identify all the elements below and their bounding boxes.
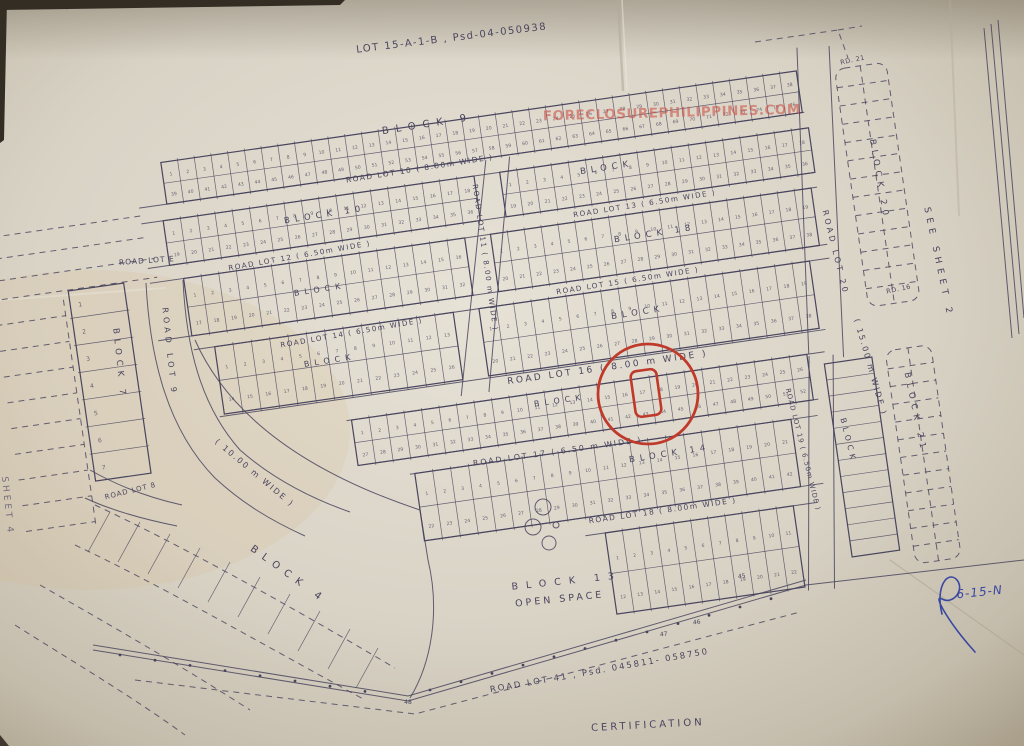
lot-number: 40 [590, 419, 597, 426]
lot-number: 21 [774, 572, 781, 579]
lot-number: 52 [388, 160, 395, 167]
lot-number: 10 [585, 467, 592, 474]
lot-number: 25 [336, 300, 343, 307]
lot-number: 18 [785, 207, 792, 214]
photo-of-subdivision-plan: { "photo": { "description": "photographe… [0, 0, 1024, 746]
lot-number: 12 [679, 298, 686, 305]
lot-number: 30 [364, 224, 371, 231]
lot-number: 64 [589, 131, 596, 138]
lot-number: 35 [661, 489, 668, 496]
lot-number: 26 [603, 261, 610, 268]
lot-number: 13 [637, 591, 644, 598]
lot-number: 27 [371, 295, 378, 302]
lot-number: 59 [505, 143, 512, 150]
lot-number: 13 [713, 152, 720, 159]
lot-number: 32 [450, 439, 457, 446]
lot-number: 25 [613, 188, 620, 195]
lot-number: 44 [254, 179, 261, 186]
lot-number: 15 [438, 257, 445, 264]
lot-number: 17 [447, 190, 454, 197]
lot-number: 49 [338, 167, 345, 174]
lot-number: 12 [696, 155, 703, 162]
lot-number: 23 [536, 118, 543, 125]
lot-number: 26 [597, 343, 604, 350]
lot-number: 37 [788, 316, 795, 323]
lot-number: 31 [442, 284, 449, 291]
lot-number: 10 [350, 270, 357, 277]
lot-number: 20 [527, 201, 534, 208]
lot-number: 17 [283, 388, 290, 395]
lot-number: 14 [654, 589, 661, 596]
lot-number: 23 [446, 520, 453, 527]
lot-number: 25 [779, 369, 786, 376]
lot-number: 32 [686, 96, 693, 103]
lot-number: 22 [519, 120, 526, 127]
lot-number: 63 [572, 133, 579, 140]
lot-number: 40 [187, 189, 194, 196]
lot-number: 22 [727, 377, 734, 384]
lot-number: 19 [510, 203, 517, 210]
lot-number: 18 [213, 317, 220, 324]
lot-number: 30 [666, 333, 673, 340]
lot-number: 51 [371, 162, 378, 169]
lot-number: 25 [482, 515, 489, 522]
lot-number: 19 [469, 128, 476, 135]
lot-number: 49 [747, 396, 754, 403]
lot-number: 11 [603, 465, 610, 472]
lot-number: 16 [430, 193, 437, 200]
lot-number: 26 [449, 364, 456, 371]
lot-number: 24 [260, 239, 267, 246]
lot-number: 12 [425, 335, 432, 342]
lot-number: 28 [329, 229, 336, 236]
lot-number: 23 [301, 305, 308, 312]
lot-number: 22 [562, 196, 569, 203]
lot-number: 13 [378, 200, 385, 207]
lot-number: 20 [502, 276, 509, 283]
lot-number: 47 [712, 401, 719, 408]
lot-number: 33 [718, 326, 725, 333]
lot-number: 23 [553, 268, 560, 275]
lot-number: 33 [415, 217, 422, 224]
lot-number: 17 [710, 449, 717, 456]
lot-number: 34 [720, 92, 727, 99]
lot-number: 35 [502, 431, 509, 438]
lot-number: 15 [671, 586, 678, 593]
lot-number: 41 [769, 474, 776, 481]
lot-number: 30 [699, 176, 706, 183]
lot-number: 15 [731, 291, 738, 298]
lot-number: 27 [614, 341, 621, 348]
lot-number: 19 [320, 383, 327, 390]
lot-number: 35 [755, 239, 762, 246]
lot-number: 62 [555, 136, 562, 143]
lot-number: 50 [355, 165, 362, 172]
lot-number: 12 [620, 594, 627, 601]
lot-number: 14 [385, 140, 392, 147]
lot-number: 10 [318, 149, 325, 156]
lot-number: 15 [402, 137, 409, 144]
lot-number: 16 [751, 212, 758, 219]
lot-number: 32 [398, 219, 405, 226]
lot-number: 35 [736, 89, 743, 96]
lot-number: 30 [424, 287, 431, 294]
lot-number: 20 [485, 125, 492, 132]
lot-number: 14 [730, 150, 737, 157]
lot-number: 28 [664, 181, 671, 188]
lot-number: 21 [709, 379, 716, 386]
lot-number: 19 [174, 252, 181, 259]
lot-number: 34 [767, 166, 774, 173]
lot-number: 22 [791, 569, 798, 576]
lot-number: 12 [352, 145, 359, 152]
lot-number: 24 [762, 372, 769, 379]
lot-number: 21 [510, 356, 517, 363]
lot-number: 14 [420, 259, 427, 266]
lot-number: 48 [321, 169, 328, 176]
lot-number: 30 [415, 444, 422, 451]
lot-number: 46 [288, 174, 295, 181]
lot-number: 23 [393, 372, 400, 379]
lot-number: 21 [544, 198, 551, 205]
lot-number: 31 [432, 442, 439, 449]
lot-number: 15 [604, 394, 611, 401]
lot-number: 21 [502, 123, 509, 130]
lot-number: 16 [455, 254, 462, 261]
lot-number: 17 [768, 209, 775, 216]
lot-number: 16 [688, 584, 695, 591]
lot-number: 38 [555, 424, 562, 431]
lot-number: 18 [722, 579, 729, 586]
lot-number: 19 [674, 384, 681, 391]
lot-number: 42 [221, 184, 228, 191]
lot-number: 22 [527, 353, 534, 360]
lot-number: 14 [587, 397, 594, 404]
lot-number: 30 [671, 251, 678, 258]
lot-number: 52 [800, 389, 807, 396]
lot-number: 23 [744, 374, 751, 381]
lot-number: 42 [786, 471, 793, 478]
lot-number: 11 [407, 337, 414, 344]
lot-number: 11 [367, 267, 374, 274]
lot-number: 34 [736, 323, 743, 330]
lot-number: 68 [656, 121, 663, 128]
lot-number: 29 [346, 227, 353, 234]
lot-number: 34 [738, 242, 745, 249]
lot-number: 29 [682, 178, 689, 185]
lot-number: 10 [661, 160, 668, 167]
lot-number: 36 [520, 429, 527, 436]
lot-number: 17 [435, 133, 442, 140]
lot-number: 34 [485, 434, 492, 441]
lot-number: 67 [639, 124, 646, 131]
lot-number: 25 [587, 264, 594, 271]
lot-number: 16 [748, 288, 755, 295]
lot-number: 45 [677, 406, 684, 413]
lot-number: 11 [335, 147, 342, 154]
lot-number: 19 [231, 315, 238, 322]
lot-number: 32 [705, 247, 712, 254]
lot-number: 13 [368, 142, 375, 149]
lot-number: 23 [544, 351, 551, 358]
lot-number: 33 [625, 495, 632, 502]
lot-number: 26 [797, 367, 804, 374]
lot-number: 32 [459, 282, 466, 289]
lot-number: 33 [467, 437, 474, 444]
lot-number: 14 [395, 198, 402, 205]
lot-number: 14 [718, 217, 725, 224]
subdivision-plan: 1392403414425436447458469471048114912501… [0, 0, 1024, 746]
lot-number: 21 [208, 247, 215, 254]
lot-number: 40 [751, 477, 758, 484]
lot-number: 38 [715, 482, 722, 489]
lot-number: 53 [405, 157, 412, 164]
lot-number: 31 [381, 222, 388, 229]
lot-number: 24 [464, 518, 471, 525]
lot-number: 29 [554, 505, 561, 512]
lot-number: 58 [488, 145, 495, 152]
lot-number: 32 [607, 497, 614, 504]
lot-number: 18 [728, 447, 735, 454]
lot-number: 42 [625, 414, 632, 421]
lot-number: 28 [389, 292, 396, 299]
lot-number: 17 [705, 582, 712, 589]
lot-number: 36 [679, 487, 686, 494]
lot-number: 37 [770, 84, 777, 91]
lot-number: 13 [696, 296, 703, 303]
lot-number: 14 [714, 293, 721, 300]
lot-number: 61 [539, 138, 546, 145]
lot-number: 19 [746, 444, 753, 451]
lot-number: 50 [765, 394, 772, 401]
lot-number: 26 [354, 297, 361, 304]
label-pt-48: 48 [404, 699, 412, 706]
lot-number: 29 [397, 447, 404, 454]
lot-number: 33 [750, 169, 757, 176]
lot-number: 21 [357, 378, 364, 385]
lot-number: 43 [238, 181, 245, 188]
lot-number: 38 [806, 232, 813, 239]
label-pt-45: 45 [738, 572, 747, 580]
lot-number: 11 [679, 157, 686, 164]
lot-number: 15 [735, 214, 742, 221]
lot-number: 35 [450, 212, 457, 219]
lot-number: 36 [770, 318, 777, 325]
lot-number: 36 [772, 237, 779, 244]
lot-number: 17 [639, 389, 646, 396]
label-pt-47: 47 [660, 630, 669, 638]
lot-number: 27 [518, 510, 525, 517]
lot-number: 15 [247, 394, 254, 401]
lot-number: 24 [570, 266, 577, 273]
lot-number: 28 [380, 449, 387, 456]
lot-number: 20 [191, 249, 198, 256]
lot-number: 45 [271, 177, 278, 184]
lot-number: 13 [403, 262, 410, 269]
lot-number: 31 [716, 174, 723, 181]
lot-number: 38 [805, 313, 812, 320]
lot-number: 17 [196, 320, 203, 327]
lot-number: 22 [428, 523, 435, 530]
lot-number: 13 [701, 219, 708, 226]
lot-number: 34 [643, 492, 650, 499]
lot-number: 16 [622, 392, 629, 399]
lot-number: 32 [701, 328, 708, 335]
lot-number: 24 [562, 348, 569, 355]
lot-number: 30 [572, 502, 579, 509]
lot-number: 18 [783, 283, 790, 290]
lot-number: 20 [338, 380, 345, 387]
lot-number: 56 [455, 150, 462, 157]
lot-number: 48 [730, 399, 737, 406]
lot-number: 25 [430, 367, 437, 374]
lot-number: 11 [785, 530, 792, 537]
lot-number: 25 [579, 346, 586, 353]
lot-number: 39 [171, 191, 178, 198]
lot-number: 22 [375, 375, 382, 382]
lot-number: 66 [622, 126, 629, 133]
lot-number: 27 [362, 452, 369, 459]
lot-number: 35 [753, 321, 760, 328]
lot-number: 24 [412, 370, 419, 377]
lot-number: 15 [747, 147, 754, 154]
lot-number: 29 [649, 336, 656, 343]
lot-number: 16 [764, 145, 771, 152]
lot-number: 29 [407, 290, 414, 297]
lot-number: 47 [304, 172, 311, 179]
lot-number: 18 [799, 140, 806, 147]
lot-number: 27 [620, 259, 627, 266]
lot-number: 34 [433, 214, 440, 221]
lot-number: 17 [781, 142, 788, 149]
lot-number: 28 [536, 508, 543, 515]
lot-number: 10 [517, 407, 524, 414]
lot-number: 21 [519, 273, 526, 280]
lot-number: 16 [419, 135, 426, 142]
lot-number: 18 [464, 188, 471, 195]
lot-number: 12 [385, 264, 392, 271]
lot-number: 15 [412, 195, 419, 202]
label-pt-46: 46 [693, 618, 702, 626]
lot-number: 12 [621, 462, 628, 469]
lot-number: 17 [766, 286, 773, 293]
lot-number: 31 [589, 500, 596, 507]
lot-number: 55 [438, 152, 445, 159]
lot-number: 16 [265, 391, 272, 398]
lot-number: 10 [768, 533, 775, 540]
lot-number: 33 [703, 94, 710, 101]
lot-number: 65 [605, 128, 612, 135]
lot-number: 18 [302, 386, 309, 393]
lot-number: 36 [753, 87, 760, 94]
lot-number: 21 [266, 310, 273, 317]
lot-number: 24 [596, 191, 603, 198]
lot-number: 26 [630, 186, 637, 193]
lot-number: 20 [492, 358, 499, 365]
lot-number: 36 [467, 209, 474, 216]
lot-number: 36 [802, 161, 809, 168]
lot-number: 60 [522, 140, 529, 147]
lot-number: 29 [654, 254, 661, 261]
lot-number: 26 [294, 234, 301, 241]
lot-number: 33 [722, 244, 729, 251]
lot-number: 22 [225, 244, 232, 251]
lot-number: 31 [688, 249, 695, 256]
lot-number: 37 [697, 484, 704, 491]
lot-number: 23 [243, 242, 250, 249]
lot-number: 27 [312, 232, 319, 239]
lot-number: 57 [472, 148, 479, 155]
lot-number: 54 [421, 155, 428, 162]
lot-number: 31 [684, 331, 691, 338]
lot-number: 20 [764, 442, 771, 449]
lot-number: 28 [637, 256, 644, 263]
lot-number: 37 [789, 234, 796, 241]
lot-number: 39 [572, 421, 579, 428]
lot-number: 27 [647, 183, 654, 190]
lot-number: 13 [444, 332, 451, 339]
lot-number: 32 [733, 171, 740, 178]
lot-number: 37 [537, 426, 544, 433]
lot-number: 22 [284, 307, 291, 314]
lot-number: 35 [785, 164, 792, 171]
lot-number: 21 [782, 439, 789, 446]
lot-number: 38 [786, 82, 793, 89]
lot-number: 20 [248, 312, 255, 319]
lot-number: 22 [536, 271, 543, 278]
lot-number: 39 [733, 479, 740, 486]
lot-number: 26 [500, 513, 507, 520]
lot-number: 20 [757, 574, 764, 581]
lot-number: 41 [204, 186, 211, 193]
lot-number: 23 [579, 193, 586, 200]
lot-number: 25 [277, 237, 284, 244]
lot-number: 18 [452, 130, 459, 137]
lot-number: 24 [319, 302, 326, 309]
lot-number: 10 [389, 340, 396, 347]
